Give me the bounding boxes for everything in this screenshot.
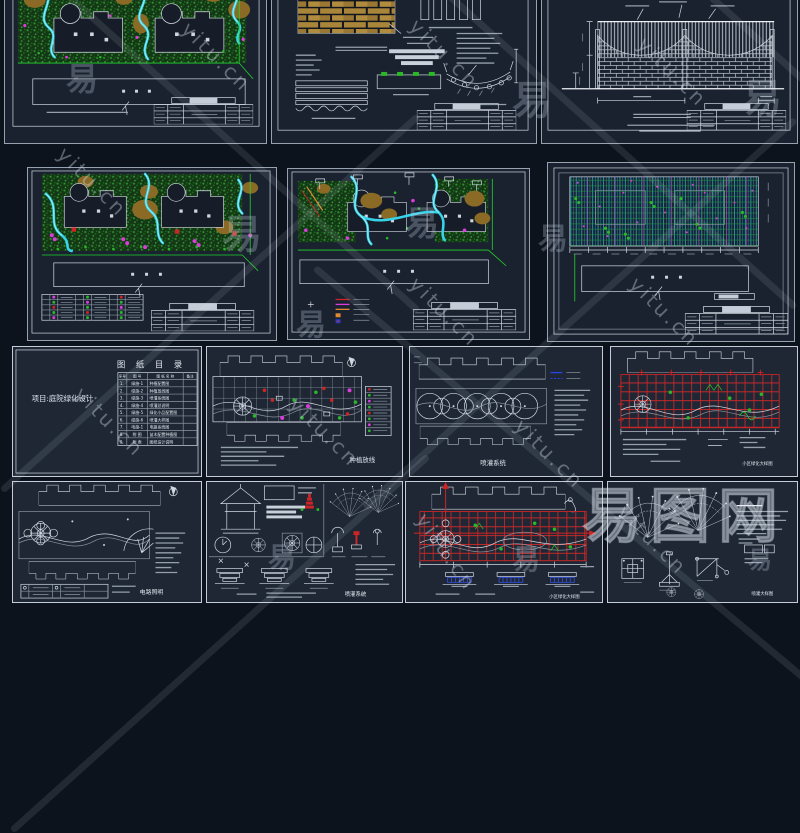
- catalog-drawing: 图 纸 目 录 项目:庭院绿化设计 序号 图 号 图 纸 名 称 备注 1.绿施…: [13, 347, 201, 476]
- sheet-drawing-catalog: 图 纸 目 录 项目:庭院绿化设计 序号 图 号 图 纸 名 称 备注 1.绿施…: [12, 346, 202, 477]
- planter-section-detail: [377, 72, 441, 89]
- sheet-sprinkler-fan-details: 喷灌大样图: [607, 481, 798, 603]
- catalog-title: 图 纸 目 录: [117, 360, 186, 370]
- fence-elevation-drawing: [542, 0, 797, 143]
- north-arrow-icon: [349, 357, 355, 367]
- sheet-planting-plan-1: [4, 0, 267, 144]
- row-code: 附 图: [133, 432, 142, 437]
- sheet-label: 喷灌大样图: [752, 590, 774, 597]
- red-grid-band: [618, 370, 779, 428]
- row-name: 绿化小品配置图: [150, 410, 178, 415]
- sprinkler-fan-diagram: [330, 488, 372, 517]
- row-no: 4.: [120, 403, 124, 408]
- row-code: 绿施-1: [131, 381, 143, 386]
- leader-labels: [625, 0, 734, 6]
- paving-details-drawing: [272, 0, 536, 143]
- pagoda-lamp-detail: [305, 494, 314, 509]
- hedge-strips: [421, 0, 481, 20]
- row-no: 9.: [120, 439, 124, 444]
- title-block: [685, 306, 788, 334]
- sprinkler-head-details: [332, 527, 385, 557]
- sheet-electric-lighting: 电路照明: [12, 481, 202, 603]
- row-name: 种植配置图: [150, 381, 170, 386]
- planting-setout-drawing: 种植放线: [207, 347, 402, 476]
- row-no: 3.: [120, 396, 124, 401]
- sheet-paving-details: [271, 0, 537, 144]
- plant-legend-table: [42, 295, 143, 321]
- row-no: 5.: [120, 410, 124, 415]
- building-footprint: [220, 356, 343, 376]
- planting-plan-drawing-2: [28, 168, 276, 340]
- road-band: [582, 266, 749, 292]
- sheet-planting-plan-2: [27, 167, 277, 341]
- sheet-green-detail-plan-2: 小区绿化大样图: [405, 481, 603, 603]
- sheet-label: 喷灌系统: [480, 458, 506, 467]
- row-name: 喷灌系统图: [150, 396, 170, 401]
- pavement-section-detail: [296, 81, 367, 111]
- note-text-block: [355, 565, 395, 585]
- sheet-planting-plan-3: [287, 168, 530, 340]
- gazebo-detail: [221, 484, 261, 533]
- row-code: 附 表: [133, 439, 142, 444]
- fixture-legend-table: [21, 584, 136, 598]
- planting-plan-drawing-3: [288, 169, 529, 339]
- dimension-lines: [573, 22, 593, 89]
- row-code: 电施-1: [131, 425, 143, 430]
- green-detail-drawing-2: 小区绿化大样图: [406, 482, 602, 602]
- row-no: 6.: [120, 417, 124, 422]
- sheet-fence-elevation: [541, 0, 798, 144]
- title-block: [413, 302, 516, 330]
- setting-out-grid: [570, 177, 758, 246]
- mount-details: [622, 552, 729, 599]
- road-band: [300, 260, 488, 284]
- bench-detail: [389, 49, 445, 65]
- project-label: 项目:庭院绿化设计: [32, 394, 94, 403]
- note-text-lines: [221, 447, 298, 465]
- foundation-details: [215, 569, 334, 589]
- building-footprint: [420, 426, 531, 444]
- sheet-irrigation-details: 喷灌系统: [206, 481, 403, 603]
- plant-legend: [365, 386, 391, 435]
- sheet-label: 小区绿化大样图: [742, 460, 772, 467]
- irrigation-details-drawing: 喷灌系统: [207, 482, 402, 602]
- spec-text-block: [554, 390, 590, 434]
- row-code: 绿施-6: [131, 417, 143, 422]
- green-detail-drawing: 小区绿化大样图: [611, 347, 797, 476]
- row-code: 绿施-4: [131, 403, 143, 408]
- pipe-legend: [551, 373, 581, 379]
- sheet-irrigation-system: 喷灌系统: [409, 346, 603, 477]
- brick-paving-detail: [298, 0, 395, 33]
- row-name: 喷灌总说明: [150, 403, 170, 408]
- row-no: 1.: [120, 381, 124, 386]
- title-block: [151, 303, 254, 331]
- building-footprint: [627, 352, 753, 373]
- setout-band: [213, 377, 361, 422]
- col-code: 图 号: [133, 374, 142, 379]
- row-name: 种植放线图: [150, 388, 170, 393]
- building-footprint: [29, 561, 136, 579]
- col-name: 图 纸 名 称: [157, 374, 175, 379]
- sheet-label: 喷灌系统: [345, 590, 367, 598]
- lighting-plan-band: [19, 512, 154, 559]
- row-code: 绿施-5: [131, 410, 143, 415]
- row-name: 图纸设计说明: [150, 439, 174, 444]
- sprinkler-coverage: [416, 388, 547, 423]
- lighting-drawing: 电路照明: [13, 482, 201, 602]
- sheet-label: 种植放线: [350, 455, 376, 464]
- dimension-row: [570, 247, 758, 253]
- foundation-details: [443, 572, 580, 586]
- title-block: [417, 104, 516, 131]
- sprinkler-fan-drawing: 喷灌大样图: [608, 482, 797, 602]
- row-no: 2.: [120, 388, 124, 393]
- building-footprint: [39, 485, 161, 505]
- arch-bridge-detail: [444, 61, 513, 96]
- sheet-green-detail-plan: 小区绿化大样图: [610, 346, 798, 477]
- row-name: 电路系统图: [150, 425, 170, 430]
- building-footprint: [227, 422, 341, 441]
- row-code: 绿施-2: [131, 388, 143, 393]
- sheet-label: 小区绿化大样图: [549, 593, 579, 600]
- col-no: 序号: [119, 374, 127, 379]
- sheet-label: 电路照明: [140, 588, 164, 596]
- north-arrow-icon: [170, 486, 176, 496]
- catalog-table: 序号 图 号 图 纸 名 称 备注 1.绿施-1种植配置图 2.绿施-2种植放线…: [118, 373, 197, 446]
- road-band: [54, 263, 244, 287]
- sheet-planting-setout: 种植放线: [206, 346, 403, 477]
- line-legend: [308, 299, 369, 323]
- spec-text-block: [737, 512, 788, 543]
- planting-plan-drawing: [5, 0, 266, 143]
- row-no: 7.: [120, 425, 124, 430]
- row-name: 苗木配置种植图: [150, 432, 178, 437]
- building-footprint: [419, 358, 546, 379]
- col-note: 备注: [187, 374, 195, 379]
- annotation-text-block: [457, 33, 503, 63]
- sprinkler-fan-diagram: [619, 496, 680, 538]
- sheet-setout-grid-plan: [547, 162, 795, 342]
- title-block: [687, 104, 786, 131]
- row-no: 8.: [120, 432, 124, 437]
- title-block: [154, 98, 253, 125]
- setout-grid-drawing: [548, 163, 794, 341]
- row-code: 绿施-3: [131, 396, 143, 401]
- building-footprint: [432, 487, 566, 509]
- note-text-lines: [623, 440, 686, 462]
- row-name: 喷灌大样图: [150, 417, 170, 422]
- irrigation-drawing: 喷灌系统: [410, 347, 602, 476]
- spec-text-block: [155, 533, 185, 572]
